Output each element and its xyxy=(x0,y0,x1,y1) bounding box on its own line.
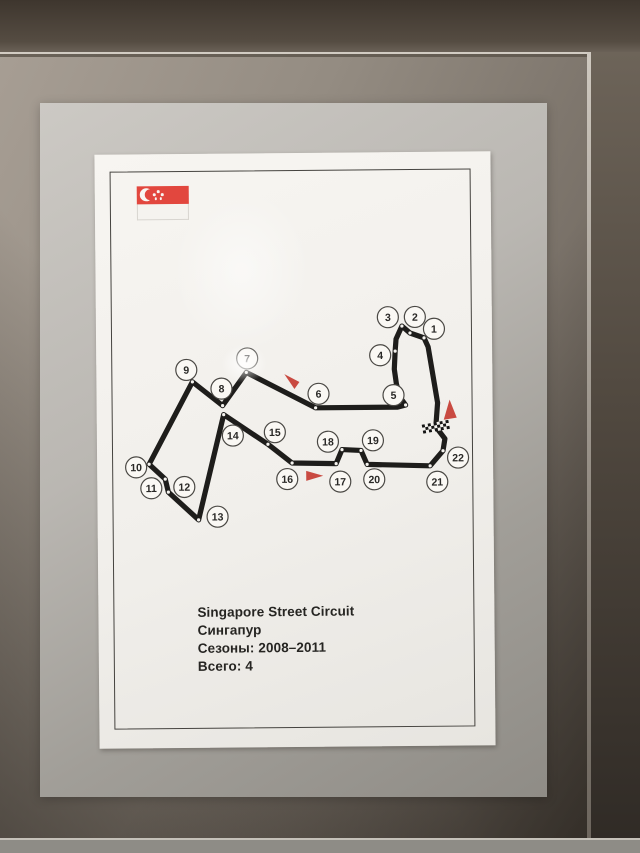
apex-dot-9 xyxy=(191,380,194,383)
mid-section-direction-arrow-icon xyxy=(284,374,299,389)
circuit-poster: 12345678910111213141516171819202122 Sing… xyxy=(94,151,495,748)
corner-marker-21: 21 xyxy=(427,471,448,492)
corner-number-12: 12 xyxy=(178,482,190,494)
apex-dot-17 xyxy=(335,462,338,465)
apex-dot-19 xyxy=(359,449,362,452)
apex-dot-2 xyxy=(408,331,411,334)
corner-number-11: 11 xyxy=(146,483,157,495)
corner-marker-14: 14 xyxy=(222,425,243,446)
corner-marker-10: 10 xyxy=(126,457,147,478)
corner-number-20: 20 xyxy=(368,474,380,486)
apex-dot-3 xyxy=(400,324,403,327)
caption-total: Всего: 4 xyxy=(198,656,458,676)
apex-dot-8 xyxy=(221,404,224,407)
corner-marker-17: 17 xyxy=(330,471,351,492)
apex-dot-13 xyxy=(197,518,200,521)
frame-mat: 12345678910111213141516171819202122 Sing… xyxy=(40,103,547,797)
corner-number-9: 9 xyxy=(183,365,189,377)
corner-marker-4: 4 xyxy=(370,345,391,366)
apex-dot-10 xyxy=(148,463,151,466)
corner-number-21: 21 xyxy=(431,476,443,488)
corner-marker-7: 7 xyxy=(237,348,258,369)
apex-dot-7 xyxy=(245,371,248,374)
apex-dot-4 xyxy=(394,350,397,353)
corner-marker-19: 19 xyxy=(362,430,383,451)
corner-number-8: 8 xyxy=(218,383,224,395)
corner-number-16: 16 xyxy=(281,474,293,486)
corner-number-3: 3 xyxy=(385,312,391,324)
apex-dot-16 xyxy=(290,461,293,464)
corner-marker-1: 1 xyxy=(423,318,444,339)
corner-marker-11: 11 xyxy=(141,478,162,499)
corner-number-19: 19 xyxy=(367,435,379,447)
corner-number-15: 15 xyxy=(269,427,281,439)
corner-number-7: 7 xyxy=(244,353,250,365)
apex-dot-14 xyxy=(222,413,225,416)
corner-marker-22: 22 xyxy=(447,447,468,468)
corner-marker-16: 16 xyxy=(277,468,298,489)
corner-marker-6: 6 xyxy=(308,383,329,404)
wall-bottom-sill xyxy=(0,838,640,853)
photo-scene: 12345678910111213141516171819202122 Sing… xyxy=(0,0,640,853)
apex-dot-18 xyxy=(340,448,343,451)
corner-number-6: 6 xyxy=(316,389,322,401)
apex-dot-22 xyxy=(441,449,444,452)
apex-dot-20 xyxy=(366,463,369,466)
corner-number-18: 18 xyxy=(322,436,334,448)
apex-dot-11 xyxy=(164,478,167,481)
corner-marker-20: 20 xyxy=(364,469,385,490)
corner-marker-9: 9 xyxy=(176,359,197,380)
apex-dot-5 xyxy=(404,403,407,406)
corner-marker-13: 13 xyxy=(207,506,228,527)
corner-number-17: 17 xyxy=(334,476,346,488)
corner-number-1: 1 xyxy=(431,324,437,336)
corner-number-22: 22 xyxy=(452,452,464,464)
apex-dot-15 xyxy=(266,443,269,446)
corner-marker-12: 12 xyxy=(174,476,195,497)
apex-dot-12 xyxy=(167,490,170,493)
bottom-section-direction-arrow-icon xyxy=(306,471,323,481)
apex-dot-21 xyxy=(429,464,432,467)
corner-marker-2: 2 xyxy=(404,306,425,327)
caption-city: Сингапур xyxy=(197,620,457,640)
apex-dot-6 xyxy=(314,406,317,409)
corner-number-10: 10 xyxy=(130,462,142,474)
corner-number-4: 4 xyxy=(377,350,383,362)
corner-number-2: 2 xyxy=(412,312,418,324)
wall-top-panel xyxy=(0,0,640,54)
corner-number-14: 14 xyxy=(227,430,239,442)
apex-dot-1 xyxy=(422,336,425,339)
start-finish-direction-arrow-icon xyxy=(444,400,457,420)
corner-number-13: 13 xyxy=(212,511,224,523)
caption-block: Singapore Street Circuit Сингапур Сезоны… xyxy=(197,602,458,676)
caption-title: Singapore Street Circuit xyxy=(197,602,457,622)
corner-marker-3: 3 xyxy=(377,307,398,328)
corner-marker-5: 5 xyxy=(383,385,404,406)
wall-right-panel xyxy=(591,52,640,853)
corner-marker-8: 8 xyxy=(211,378,232,399)
corner-marker-18: 18 xyxy=(317,431,338,452)
corner-number-5: 5 xyxy=(391,390,397,402)
corner-marker-15: 15 xyxy=(264,422,285,443)
caption-seasons: Сезоны: 2008–2011 xyxy=(198,638,458,658)
